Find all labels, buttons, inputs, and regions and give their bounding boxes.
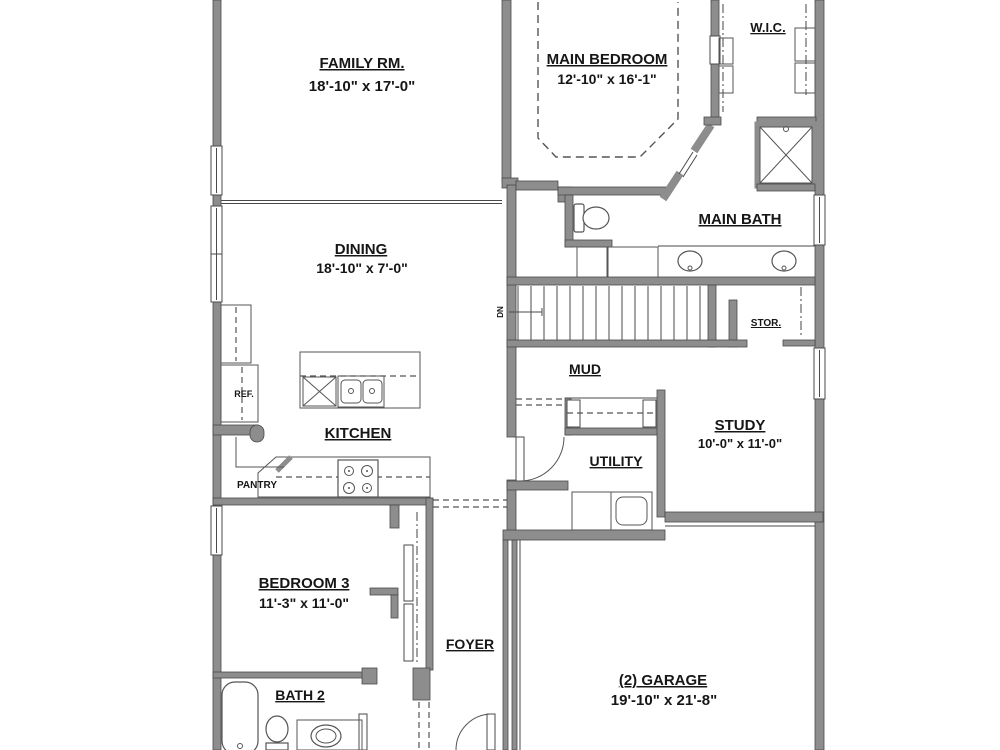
pantry-corner-wall [277, 457, 291, 471]
room-label-main-bath: MAIN BATH [698, 211, 781, 228]
room-label-dining: DINING [335, 241, 388, 258]
exterior-wall-left [213, 0, 221, 750]
bathtub-symbol [222, 682, 258, 750]
front-door [456, 714, 495, 750]
window-study-right [814, 348, 825, 399]
room-dims-family: 18'-10" x 17'-0" [309, 78, 415, 95]
room-label-foyer: FOYER [446, 636, 494, 652]
stairs [509, 286, 700, 340]
window-family-left [211, 146, 222, 195]
room-label-pantry: PANTRY [237, 480, 277, 491]
wall-kitchen-bedroom3 [213, 498, 433, 505]
mud-cased-opening [516, 399, 565, 405]
window-dining-left [211, 206, 222, 302]
double-sink-symbol [338, 376, 384, 407]
room-label-study: STUDY [715, 417, 766, 434]
room-label-stor: STOR. [751, 318, 782, 329]
shower-symbol [757, 124, 815, 191]
room-label-family: FAMILY RM. [319, 55, 404, 72]
room-dims-study: 10'-0" x 11'-0" [698, 436, 782, 451]
window-mainbath-right [814, 195, 825, 245]
bath2-door-panel [359, 714, 367, 750]
room-label-mud: MUD [569, 361, 601, 377]
dining-tall-cabinet [221, 305, 251, 363]
stove-symbol [338, 460, 378, 497]
room-dims-main-bedroom: 12'-10" x 16'-1" [557, 71, 656, 87]
wall-utility-inner [507, 481, 568, 490]
kitchen-island [300, 352, 420, 408]
wall-stairs-north [507, 277, 815, 285]
label-ref: REF. [234, 389, 254, 399]
toilet-symbol-bath2 [266, 716, 288, 750]
bedroom3-closet [370, 498, 433, 670]
room-label-utility: UTILITY [590, 453, 644, 469]
room-label-bedroom3: BEDROOM 3 [259, 575, 350, 592]
room-label-kitchen: KITCHEN [325, 425, 392, 442]
mainbath-vanity [658, 246, 815, 271]
sink-symbol [678, 251, 702, 271]
room-label-main-bedroom: MAIN BEDROOM [547, 51, 668, 68]
wall-stairs-south [507, 340, 815, 347]
wall-utility-east [657, 390, 665, 517]
label-dn: DN [496, 306, 505, 318]
room-label-wic: W.I.C. [750, 20, 785, 35]
wall-stairs-east [708, 285, 737, 347]
sink-symbol [772, 251, 796, 271]
toilet-symbol-mainbath [574, 204, 609, 232]
washer-dryer-symbols [572, 492, 652, 530]
room-label-garage: (2) GARAGE [619, 672, 707, 689]
kitchen-foyer-opening [433, 500, 507, 507]
floor-plan-drawing: FAMILY RM. 18'-10" x 17'-0" MAIN BEDROOM… [0, 0, 1000, 750]
wall-family-east [502, 0, 518, 188]
separator-family-dining [221, 201, 502, 204]
room-label-bath2: BATH 2 [275, 687, 325, 703]
room-dims-bedroom3: 11'-3" x 11'-0" [259, 595, 349, 611]
bath2-vanity [297, 720, 362, 750]
foyer-coat-closet [413, 668, 430, 750]
wall-foyer-garage-double [503, 540, 520, 750]
room-dims-dining: 18'-10" x 7'-0" [316, 260, 408, 276]
utility-door [516, 437, 564, 481]
mainbath-cabinets [577, 247, 658, 279]
room-dims-garage: 19'-10" x 21'-8" [611, 692, 717, 709]
mud-closet [565, 398, 663, 435]
wall-mainbedroom-south [558, 125, 711, 202]
window-bedroom3-left [211, 506, 222, 555]
floor-plan-canvas: FAMILY RM. 18'-10" x 17'-0" MAIN BEDROOM… [0, 0, 1000, 750]
